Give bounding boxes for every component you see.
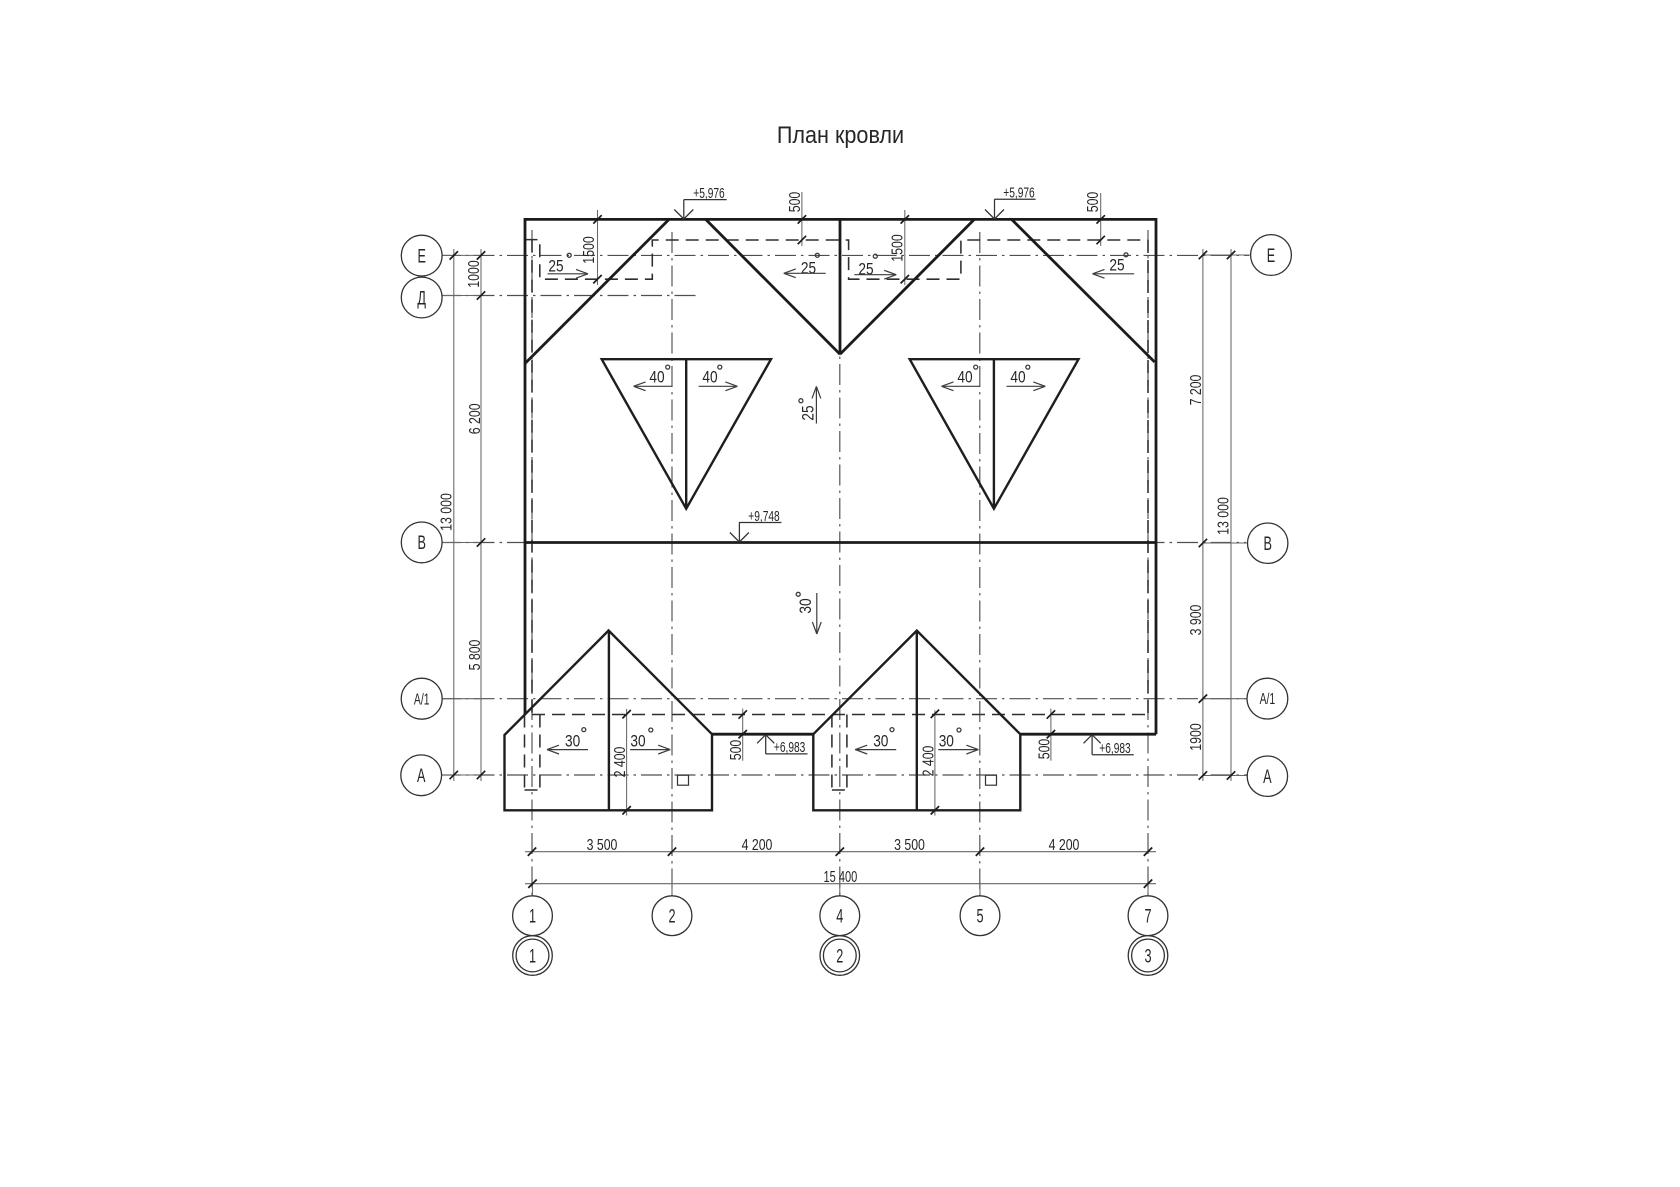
svg-text:13 000: 13 000 (438, 493, 456, 531)
svg-text:25: 25 (858, 260, 873, 278)
svg-text:25: 25 (801, 259, 816, 277)
svg-text:7: 7 (1144, 906, 1151, 927)
svg-text:30: 30 (939, 732, 954, 750)
svg-text:500: 500 (1085, 192, 1103, 213)
svg-text:+6,983: +6,983 (774, 738, 805, 756)
svg-text:7 200: 7 200 (1188, 374, 1206, 405)
svg-text:30: 30 (873, 732, 888, 750)
svg-text:В: В (417, 533, 425, 554)
svg-text:+9,748: +9,748 (748, 507, 779, 525)
svg-text:1000: 1000 (466, 260, 484, 288)
svg-text:40: 40 (649, 368, 664, 386)
svg-text:30: 30 (630, 732, 645, 750)
svg-text:1500: 1500 (581, 236, 599, 264)
svg-text:А/1: А/1 (414, 690, 430, 708)
svg-text:+5,976: +5,976 (1003, 184, 1034, 202)
svg-text:3 900: 3 900 (1188, 604, 1206, 635)
svg-text:6 200: 6 200 (467, 403, 485, 434)
svg-text:30: 30 (565, 732, 580, 750)
svg-text:2: 2 (668, 906, 675, 927)
svg-text:В: В (1263, 533, 1271, 554)
svg-text:А: А (1263, 766, 1271, 787)
svg-text:4 200: 4 200 (1049, 837, 1080, 855)
svg-text:40: 40 (1010, 368, 1025, 386)
svg-text:Е: Е (1267, 245, 1275, 266)
svg-text:5 800: 5 800 (467, 639, 485, 670)
svg-text:2 400: 2 400 (612, 746, 630, 777)
svg-text:500: 500 (728, 740, 746, 761)
svg-text:500: 500 (1036, 739, 1054, 760)
svg-text:А/1: А/1 (1260, 690, 1276, 708)
svg-text:+5,976: +5,976 (693, 184, 724, 202)
svg-text:40: 40 (702, 368, 717, 386)
svg-text:4: 4 (836, 906, 843, 927)
svg-text:Е: Е (417, 246, 425, 267)
svg-text:30: 30 (797, 598, 815, 613)
svg-text:+6,983: +6,983 (1099, 739, 1130, 757)
svg-text:2 400: 2 400 (920, 745, 938, 776)
svg-text:1: 1 (529, 906, 536, 927)
svg-text:1500: 1500 (889, 234, 907, 262)
svg-text:3: 3 (1144, 946, 1151, 967)
svg-text:А: А (417, 766, 425, 787)
svg-text:500: 500 (786, 192, 804, 213)
svg-text:1900: 1900 (1188, 723, 1206, 751)
svg-text:13 000: 13 000 (1215, 497, 1233, 535)
svg-text:3 500: 3 500 (587, 837, 618, 855)
svg-text:25: 25 (799, 405, 817, 420)
svg-text:5: 5 (976, 906, 983, 927)
svg-text:4 200: 4 200 (742, 837, 773, 855)
svg-text:15 400: 15 400 (823, 868, 857, 885)
svg-text:Д: Д (417, 288, 426, 309)
svg-text:План кровли: План кровли (777, 121, 904, 148)
svg-text:25: 25 (548, 257, 563, 275)
svg-text:2: 2 (836, 946, 843, 967)
svg-text:40: 40 (957, 368, 972, 386)
svg-text:1: 1 (529, 946, 536, 967)
svg-text:25: 25 (1109, 256, 1124, 274)
svg-text:3 500: 3 500 (894, 837, 925, 855)
